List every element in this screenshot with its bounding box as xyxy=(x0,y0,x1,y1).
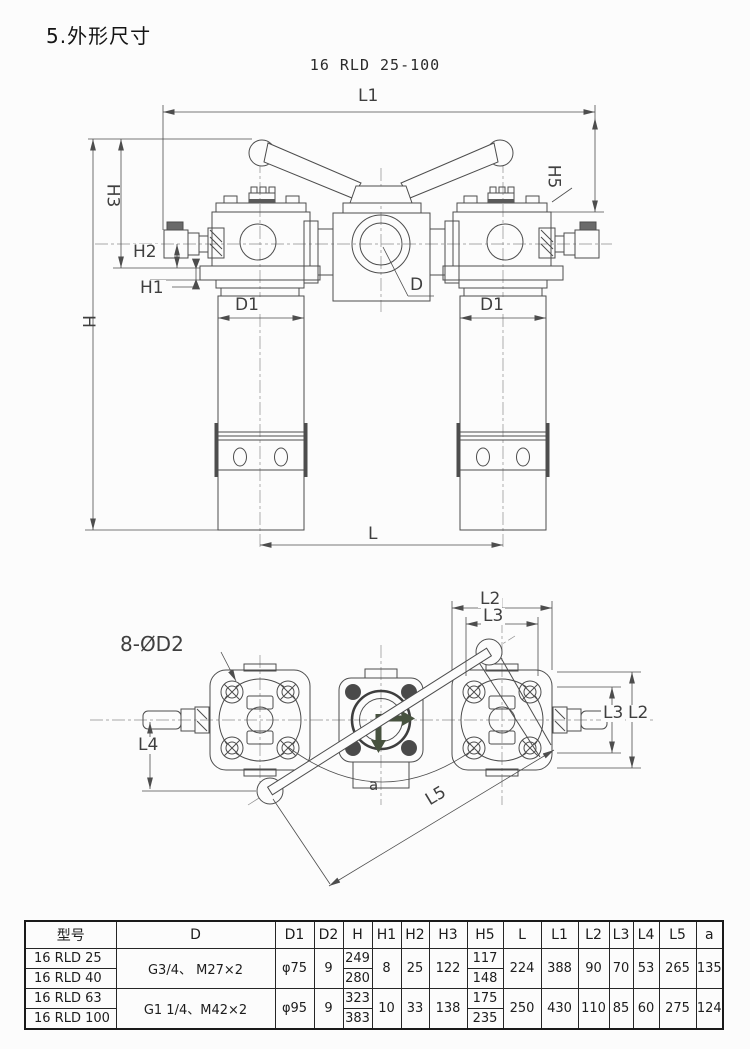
plan-dimensions xyxy=(142,601,641,886)
centerlines-front xyxy=(95,160,612,548)
header-l3: L3 xyxy=(609,921,633,949)
dimension-spec-table: 型号 D D1 D2 H H1 H2 H3 H5 L L1 L2 L3 L4 L… xyxy=(24,920,724,1030)
table-cell-l: 250 xyxy=(503,989,541,1030)
model-cell: 16 RLD 100 xyxy=(25,1009,116,1030)
table-cell-a: 124 xyxy=(696,989,723,1030)
table-cell-h3: 122 xyxy=(429,949,467,989)
table-cell-h: 383 xyxy=(343,1009,372,1030)
table-cell-l5: 265 xyxy=(659,949,696,989)
model-cell: 16 RLD 63 xyxy=(25,989,116,1009)
right-flange-plan xyxy=(452,651,607,776)
dim-label-h1: H1 xyxy=(138,280,166,297)
table-cell-l4: 53 xyxy=(633,949,659,989)
handle-plan xyxy=(257,639,502,804)
table-cell-d: G1 1/4、M42×2 xyxy=(116,989,275,1030)
left-port-fitting xyxy=(164,222,224,258)
table-cell-l3: 85 xyxy=(609,989,633,1030)
table-cell-l: 224 xyxy=(503,949,541,989)
table-cell-h2: 25 xyxy=(401,949,429,989)
table-cell-d2: 9 xyxy=(314,989,343,1030)
header-h1: H1 xyxy=(372,921,401,949)
table-cell-l1: 430 xyxy=(541,989,578,1030)
table-header-row: 型号 D D1 D2 H H1 H2 H3 H5 L L1 L2 L3 L4 L… xyxy=(25,921,723,949)
table-cell-h1: 8 xyxy=(372,949,401,989)
header-h: H xyxy=(343,921,372,949)
drawing-page: 5.外形尺寸 16 RLD 25-100 xyxy=(0,0,750,1049)
front-view xyxy=(85,105,612,548)
table-cell-h: 249 xyxy=(343,949,372,969)
table-cell-l3: 70 xyxy=(609,949,633,989)
dim-label-l3-top: L3 xyxy=(481,608,505,625)
dim-label-l: L xyxy=(368,526,377,543)
left-bowl-clamp xyxy=(216,423,306,477)
table-cell-h2: 33 xyxy=(401,989,429,1030)
header-l2: L2 xyxy=(578,921,609,949)
bolt-pattern-callout: 8-ØD2 xyxy=(120,634,184,654)
table-cell-d1: φ95 xyxy=(275,989,314,1030)
centerlines-plan xyxy=(90,598,655,805)
dim-label-h2: H2 xyxy=(131,244,159,261)
model-cell: 16 RLD 25 xyxy=(25,949,116,969)
table-cell-d1: φ75 xyxy=(275,949,314,989)
table-cell-l5: 275 xyxy=(659,989,696,1030)
valve-plan xyxy=(339,669,423,788)
table-cell-l1: 388 xyxy=(541,949,578,989)
table-cell-h: 280 xyxy=(343,969,372,989)
right-port-fitting xyxy=(539,222,599,258)
table-row: 16 RLD 63 G1 1/4、M42×2 φ95 9 323 10 33 1… xyxy=(25,989,723,1009)
table-cell-h5: 148 xyxy=(467,969,503,989)
table-cell-h5: 175 xyxy=(467,989,503,1009)
table-cell-l4: 60 xyxy=(633,989,659,1030)
header-h2: H2 xyxy=(401,921,429,949)
table-cell-l2: 110 xyxy=(578,989,609,1030)
header-l5: L5 xyxy=(659,921,696,949)
dim-label-l4: L4 xyxy=(136,737,160,754)
table-cell-a: 135 xyxy=(696,949,723,989)
table-cell-h: 323 xyxy=(343,989,372,1009)
dim-label-l2-right: L2 xyxy=(626,705,650,722)
header-a: a xyxy=(696,921,723,949)
dim-label-angle-a: a xyxy=(369,778,378,793)
dim-label-h3: H3 xyxy=(103,184,120,208)
table-cell-l2: 90 xyxy=(578,949,609,989)
header-model: 型号 xyxy=(25,921,116,949)
header-d: D xyxy=(116,921,275,949)
dim-label-l1: L1 xyxy=(358,88,378,105)
valve-body-front xyxy=(304,203,459,301)
dim-label-d1-right: D1 xyxy=(478,297,506,314)
front-dimensions xyxy=(85,105,604,545)
header-l1: L1 xyxy=(541,921,578,949)
header-h3: H3 xyxy=(429,921,467,949)
dim-label-h: H xyxy=(79,315,96,328)
header-d1: D1 xyxy=(275,921,314,949)
table-row: 16 RLD 25 G3/4、 M27×2 φ75 9 249 8 25 122… xyxy=(25,949,723,969)
dim-label-l3-right: L3 xyxy=(601,705,625,722)
table-cell-d2: 9 xyxy=(314,949,343,989)
header-d2: D2 xyxy=(314,921,343,949)
table-cell-h3: 138 xyxy=(429,989,467,1030)
table-cell-d: G3/4、 M27×2 xyxy=(116,949,275,989)
header-l4: L4 xyxy=(633,921,659,949)
header-l: L xyxy=(503,921,541,949)
dim-label-d1-left: D1 xyxy=(233,297,261,314)
table-cell-h5: 117 xyxy=(467,949,503,969)
dim-label-h5: H5 xyxy=(544,165,561,189)
model-cell: 16 RLD 40 xyxy=(25,969,116,989)
dim-label-d: D xyxy=(410,277,423,294)
table-cell-h1: 10 xyxy=(372,989,401,1030)
table-cell-h5: 235 xyxy=(467,1009,503,1030)
header-h5: H5 xyxy=(467,921,503,949)
